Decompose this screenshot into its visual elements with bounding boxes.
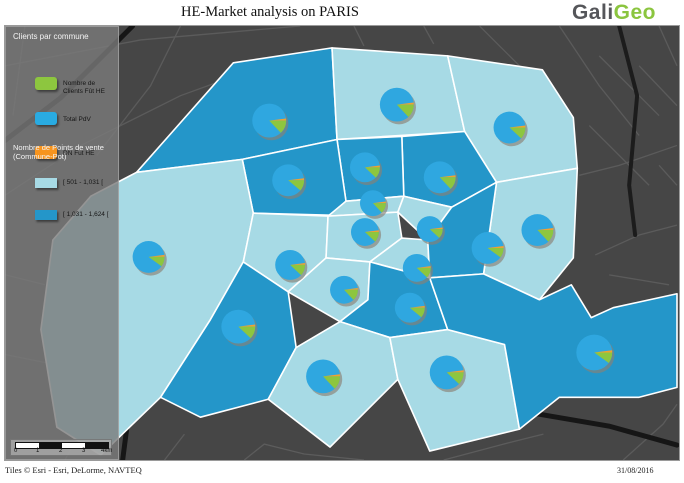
legend-label-clients: Nombre de Clients Fût HE: [63, 80, 115, 95]
scale-tick: 2: [59, 448, 62, 454]
choropleth-title-line1: Nombre de Points de vente: [13, 143, 104, 152]
scale-tick: 0: [14, 448, 17, 454]
map-attribution: Tiles © Esri - Esri, DeLorme, NAVTEQ: [5, 465, 142, 475]
legend-swatch-total-pdv: [35, 112, 57, 125]
legend-label-class-high: [ 1,031 - 1,624 [: [63, 211, 117, 218]
legend-swatch-clients: [35, 77, 57, 90]
legend-swatch-class-high: [35, 210, 57, 220]
choropleth-title-line2: (Commune-Pot): [13, 152, 66, 161]
scale-tick: 4km: [101, 448, 112, 454]
scale-bar: 0 1 2 3 4km: [10, 439, 112, 456]
scale-tick: 1: [36, 448, 39, 454]
legend-panel: Clients par commune Nombre de Clients Fû…: [5, 26, 119, 460]
legend-title: Clients par commune: [13, 32, 89, 41]
page-title: HE-Market analysis on PARIS: [0, 4, 540, 21]
legend-choropleth-title: Nombre de Points de vente (Commune-Pot): [13, 143, 115, 161]
scale-bar-labels: 0 1 2 3 4km: [11, 448, 113, 456]
report-date: 31/08/2016: [617, 466, 653, 475]
legend-swatch-class-low: [35, 178, 57, 188]
scale-tick: 3: [82, 448, 85, 454]
report-page: HE-Market analysis on PARIS GaliGeo: [0, 0, 684, 483]
legend-label-total-pdv: Total PdV: [63, 116, 115, 124]
logo-text-gali: Gali: [572, 1, 614, 24]
logo-text-geo: Geo: [614, 1, 656, 24]
galigeo-logo: GaliGeo: [572, 1, 656, 25]
legend-label-class-low: [ 501 - 1,031 [: [63, 179, 117, 186]
